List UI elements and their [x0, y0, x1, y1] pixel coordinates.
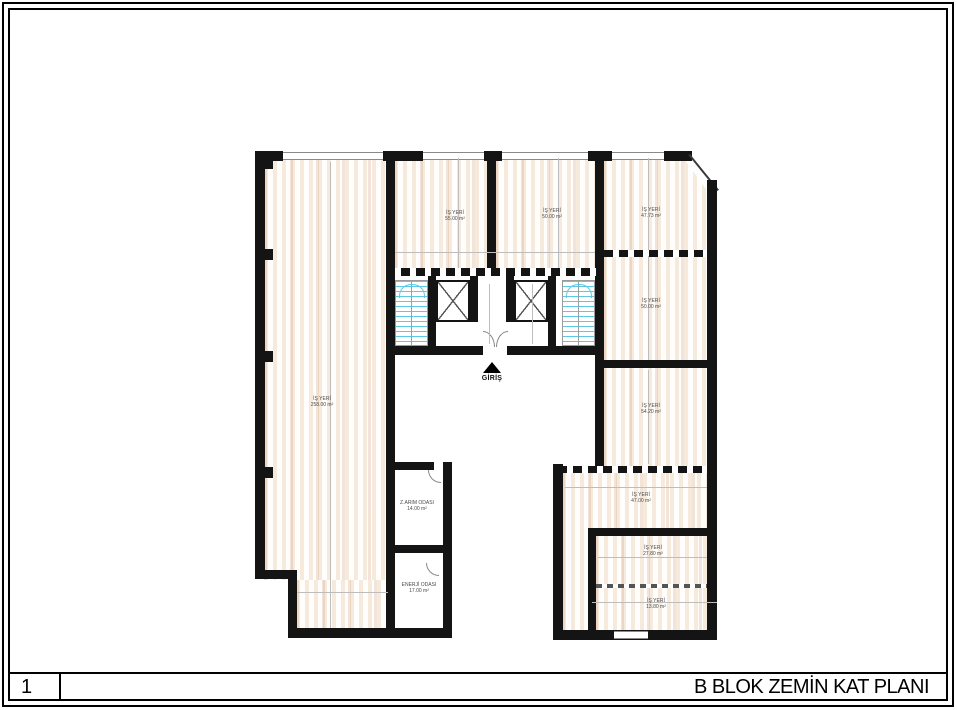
room-area: 258.00 m² — [292, 402, 352, 408]
window-band — [255, 152, 692, 160]
wall — [428, 276, 436, 350]
floor-hatch — [595, 535, 707, 585]
room-label: İŞ YERİ 55.00 m² — [425, 210, 485, 222]
wall — [470, 276, 478, 322]
dimension-line — [648, 158, 649, 250]
dimension-line — [489, 284, 490, 344]
room-area: 50.00 m² — [522, 214, 582, 220]
floor-hatch — [296, 580, 386, 630]
floor-plan: GİRİŞ İŞ YERİ 258.00 m² İŞ YERİ 55.00 m²… — [0, 0, 957, 710]
room-label: Z.ARIM ODASI 14.00 m² — [387, 500, 447, 512]
sheet-title: B BLOK ZEMİN KAT PLANI — [61, 676, 947, 699]
elevator — [436, 280, 470, 322]
column-bump — [265, 158, 273, 169]
room-label: İŞ YERİ 258.00 m² — [292, 396, 352, 408]
room-area: 54.20 m² — [621, 409, 681, 415]
room-area: 27.80 m² — [623, 551, 683, 557]
dimension-line — [648, 370, 649, 464]
wall — [487, 152, 496, 274]
column-bump — [265, 249, 273, 260]
sheet-number: 1 — [9, 674, 61, 701]
room-area: 55.00 m² — [425, 216, 485, 222]
dashed-wall — [558, 466, 710, 473]
room-area: 47.00 m² — [611, 498, 671, 504]
floor-hatch — [562, 528, 589, 631]
stair-arc — [399, 284, 425, 298]
column-bump — [265, 351, 273, 362]
room-label: İŞ YERİ 54.20 m² — [621, 403, 681, 415]
dimension-line — [598, 557, 707, 558]
stair-arc — [566, 284, 592, 298]
dashed-wall — [604, 250, 714, 257]
title-bar: 1 B BLOK ZEMİN KAT PLANI — [9, 672, 947, 701]
entrance-arrow-icon — [483, 362, 501, 373]
room-label: İŞ YERİ 50.00 m² — [621, 298, 681, 310]
staircase — [562, 280, 595, 346]
room-label: İŞ YERİ 47.00 m² — [611, 492, 671, 504]
floor-hatch — [603, 367, 707, 467]
room-label: İŞ YERİ 13.80 m² — [626, 598, 686, 610]
staircase — [395, 280, 428, 346]
column-bump — [265, 467, 273, 478]
wall — [553, 464, 563, 640]
window — [614, 631, 648, 639]
dimension-line — [330, 162, 331, 628]
dimension-line — [297, 592, 388, 593]
wall — [590, 528, 717, 536]
wall — [386, 545, 448, 553]
wall — [386, 152, 395, 638]
wall — [604, 360, 717, 368]
dimension-line — [532, 284, 533, 344]
wall — [548, 276, 556, 350]
room-area: 50.00 m² — [621, 304, 681, 310]
dashed-wall — [596, 584, 717, 588]
wall — [288, 570, 297, 634]
dimension-line — [395, 252, 595, 253]
floor-hatch — [603, 156, 707, 252]
wall — [595, 152, 604, 472]
room-label: ENERJİ ODASI 17.00 m² — [389, 582, 449, 594]
room-area: 14.00 m² — [387, 506, 447, 512]
elevator — [514, 280, 548, 322]
window-pier — [664, 151, 692, 161]
entrance-door-arc — [496, 331, 508, 347]
room-area: 47.73 m² — [621, 213, 681, 219]
room-area: 17.00 m² — [389, 588, 449, 594]
room-label: İŞ YERİ 47.73 m² — [621, 207, 681, 219]
entrance-label: GİRİŞ — [467, 375, 517, 382]
wall — [386, 462, 434, 470]
wall — [707, 184, 717, 640]
wall — [288, 628, 451, 638]
wall — [588, 528, 596, 640]
dashed-wall — [386, 268, 604, 276]
wall — [506, 276, 514, 322]
floor-hatch — [264, 158, 386, 580]
wall — [255, 152, 265, 576]
room-area: 13.80 m² — [626, 604, 686, 610]
door-arc — [428, 470, 441, 483]
door-arc — [426, 563, 439, 576]
dimension-line — [565, 487, 707, 488]
room-label: İŞ YERİ 27.80 m² — [623, 545, 683, 557]
room-label: İŞ YERİ 50.00 m² — [522, 208, 582, 220]
